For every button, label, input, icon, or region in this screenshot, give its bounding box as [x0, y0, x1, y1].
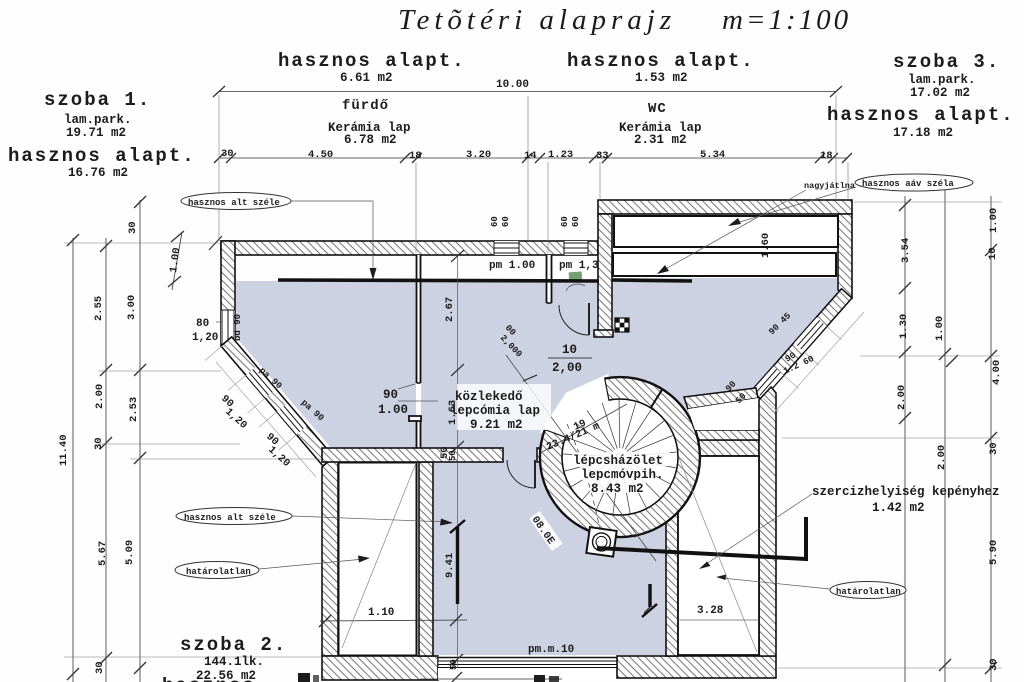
svg-text:30: 30	[988, 658, 1000, 671]
svg-text:hasznos: hasznos	[162, 675, 256, 682]
svg-text:19.71 m2: 19.71 m2	[66, 126, 126, 140]
svg-text:hasznos alapt.: hasznos alapt.	[567, 50, 755, 72]
svg-text:2.00: 2.00	[94, 384, 106, 409]
svg-text:5.09: 5.09	[124, 540, 136, 565]
svg-text:hasznos alapt.: hasznos alapt.	[827, 104, 1015, 126]
svg-text:lepcmóvpih.: lepcmóvpih.	[581, 468, 664, 482]
svg-text:2.00: 2.00	[936, 445, 948, 470]
svg-text:Tetõtéri alaprajz: Tetõtéri alaprajz	[398, 4, 676, 36]
svg-text:szercizhelyiség kepényhez: szercizhelyiség kepényhez	[812, 485, 1000, 499]
svg-text:lam.park.: lam.park.	[64, 113, 132, 127]
svg-text:5.34: 5.34	[700, 149, 725, 161]
svg-text:4.50: 4.50	[308, 149, 333, 161]
svg-text:50: 50	[449, 659, 459, 670]
svg-text:5.67: 5.67	[97, 541, 109, 566]
svg-text:3.28: 3.28	[697, 605, 724, 617]
svg-text:hasznos alapt.: hasznos alapt.	[278, 50, 466, 72]
svg-text:határolatlan: határolatlan	[186, 567, 251, 577]
svg-text:17.18 m2: 17.18 m2	[893, 126, 953, 140]
svg-text:80: 80	[196, 318, 209, 330]
svg-text:17.02 m2: 17.02 m2	[910, 86, 970, 100]
svg-text:fürdő: fürdő	[342, 98, 389, 114]
svg-text:2.55: 2.55	[93, 296, 105, 321]
svg-text:10.00: 10.00	[496, 79, 529, 91]
svg-text:5.90: 5.90	[988, 540, 1000, 565]
svg-text:bd 90: bd 90	[233, 314, 243, 341]
svg-text:60: 60	[501, 216, 511, 227]
svg-text:1.00: 1.00	[378, 403, 408, 417]
svg-text:144.1lk.: 144.1lk.	[204, 655, 264, 669]
svg-text:szoba 1.: szoba 1.	[44, 89, 151, 111]
svg-text:10: 10	[562, 343, 577, 357]
svg-text:30: 30	[127, 221, 139, 234]
svg-text:3.00: 3.00	[126, 295, 138, 320]
svg-text:3.20: 3.20	[466, 149, 491, 161]
svg-text:WC: WC	[648, 101, 667, 117]
svg-text:hasznos alt széle: hasznos alt széle	[188, 198, 280, 208]
svg-text:nagyjátlna: nagyjátlna	[804, 181, 855, 191]
svg-text:2.53: 2.53	[128, 397, 140, 422]
svg-text:18: 18	[820, 150, 833, 162]
svg-text:1.00: 1.00	[988, 208, 1000, 233]
svg-text:30: 30	[988, 442, 1000, 455]
svg-text:1,20: 1,20	[265, 444, 292, 470]
svg-text:11.40: 11.40	[58, 434, 70, 466]
svg-text:9.21 m2: 9.21 m2	[470, 418, 523, 432]
svg-text:hasznos alt széle: hasznos alt széle	[184, 513, 276, 523]
svg-text:közlekedő: közlekedő	[455, 390, 523, 404]
svg-text:m=1:100: m=1:100	[722, 4, 851, 36]
svg-text:1.53 m2: 1.53 m2	[635, 71, 688, 85]
svg-text:1.60: 1.60	[760, 233, 772, 258]
svg-text:1.42 m2: 1.42 m2	[872, 501, 925, 515]
svg-text:60: 60	[571, 216, 581, 227]
svg-text:4.00: 4.00	[991, 360, 1003, 385]
svg-text:szoba 3.: szoba 3.	[893, 51, 1000, 73]
svg-text:lepcómia lap: lepcómia lap	[450, 404, 540, 418]
svg-text:lépcsházölet: lépcsházölet	[573, 454, 663, 468]
svg-text:2.67: 2.67	[444, 297, 456, 322]
svg-text:14: 14	[524, 150, 537, 162]
svg-text:8.43 m2: 8.43 m2	[591, 482, 644, 496]
svg-text:60: 60	[560, 216, 570, 227]
svg-text:30: 30	[93, 437, 105, 450]
svg-text:30: 30	[221, 148, 234, 160]
svg-text:2.00: 2.00	[896, 385, 908, 410]
svg-text:10: 10	[987, 247, 999, 260]
svg-text:lam.park.: lam.park.	[908, 73, 976, 87]
svg-text:33: 33	[596, 150, 609, 162]
svg-text:1.00: 1.00	[168, 247, 183, 274]
svg-text:hasznos aáv széla: hasznos aáv széla	[862, 179, 954, 189]
svg-text:9.41: 9.41	[444, 553, 456, 578]
svg-text:30: 30	[94, 661, 106, 674]
svg-text:1.30: 1.30	[898, 314, 910, 339]
svg-text:6.61 m2: 6.61 m2	[340, 71, 393, 85]
svg-text:1,20: 1,20	[192, 332, 218, 344]
svg-text:50: 50	[439, 446, 451, 459]
svg-text:1.10: 1.10	[368, 607, 394, 619]
svg-text:1,20: 1,20	[222, 406, 249, 432]
svg-text:határolatlan: határolatlan	[836, 587, 901, 597]
svg-text:6.78 m2: 6.78 m2	[344, 133, 397, 147]
svg-text:18: 18	[409, 150, 422, 162]
svg-text:hasznos alapt.: hasznos alapt.	[8, 145, 196, 167]
svg-text:2.31 m2: 2.31 m2	[634, 133, 687, 147]
svg-text:2,00: 2,00	[552, 361, 582, 375]
svg-text:pm.m.10: pm.m.10	[528, 644, 574, 656]
svg-text:3.54: 3.54	[900, 238, 912, 263]
svg-text:1.23: 1.23	[548, 149, 573, 161]
svg-text:szoba 2.: szoba 2.	[180, 634, 287, 656]
svg-text:90: 90	[383, 388, 398, 402]
svg-text:1.00: 1.00	[934, 316, 946, 341]
svg-text:pm 1.00: pm 1.00	[489, 260, 535, 272]
svg-text:16.76 m2: 16.76 m2	[68, 166, 128, 180]
svg-text:pm 1,3: pm 1,3	[559, 260, 599, 272]
svg-text:60: 60	[490, 216, 500, 227]
